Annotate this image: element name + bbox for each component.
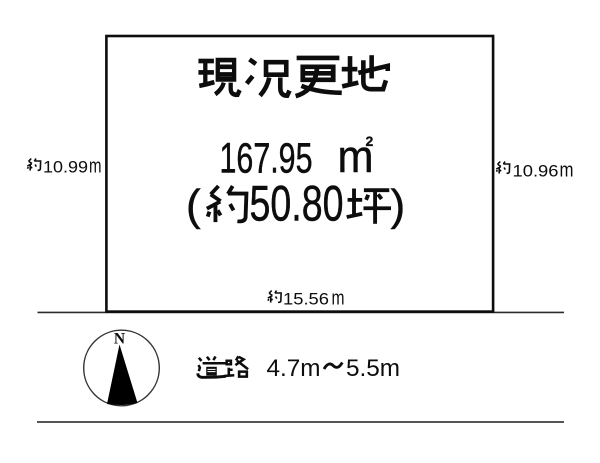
svg-text:(: ( xyxy=(186,181,201,230)
svg-text:m: m xyxy=(89,156,102,178)
svg-text:): ) xyxy=(391,181,406,230)
svg-text:5.5m: 5.5m xyxy=(346,355,400,382)
svg-text:50.80: 50.80 xyxy=(250,176,344,232)
svg-text:4.7m: 4.7m xyxy=(267,355,321,382)
svg-text:m: m xyxy=(560,160,574,182)
svg-text:15.56: 15.56 xyxy=(283,290,329,309)
svg-text:2: 2 xyxy=(366,133,374,149)
svg-text:m: m xyxy=(332,288,345,310)
svg-text:10.96: 10.96 xyxy=(513,162,559,181)
svg-text:10.99: 10.99 xyxy=(43,158,88,177)
